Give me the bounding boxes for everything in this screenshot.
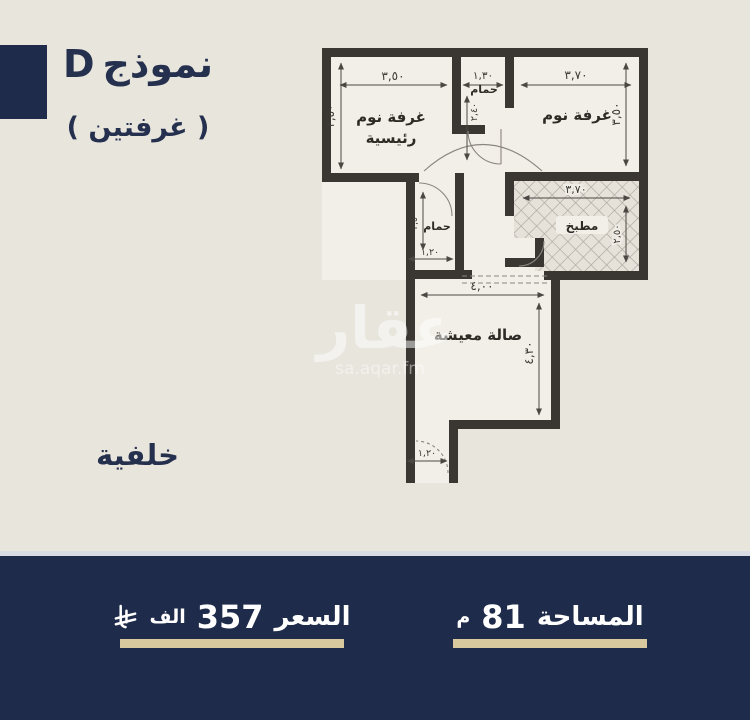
dim-living-width: ٤,٠٠ (470, 279, 493, 293)
dim-master-width: ٣,٥٠ (381, 69, 404, 83)
dim-living-height: ٤,٣٠ (522, 341, 536, 364)
watermark-brand: عقار (314, 294, 454, 362)
watermark-site: sa.aqar.fm (335, 359, 425, 379)
label-kitchen: مطبخ (566, 219, 599, 233)
dim-master-height: ٣,٥٠ (323, 104, 337, 127)
area-value: 81 (481, 598, 526, 636)
dim-bath-mid-height: ٢,٥٠ (410, 212, 420, 229)
dim-bath-top-width: ١,٣٠ (473, 70, 493, 82)
label-master-bedroom-2: رئيسية (366, 129, 417, 147)
price-value: 357 (197, 598, 264, 636)
label-bedroom: غرفة نوم (542, 106, 612, 124)
dim-kitchen-width: ٣,٧٠ (565, 183, 586, 196)
area-row: المساحة 81 م (448, 594, 652, 640)
dim-bath-top-height: ٢,٤٠ (469, 103, 480, 121)
price-row: السعر 357 الف (112, 594, 352, 640)
price-label: السعر (275, 602, 351, 632)
dim-entrance-width: ١,٢٠ (418, 448, 436, 459)
area-label: المساحة (537, 602, 644, 632)
saudi-riyal-icon (113, 603, 138, 632)
label-bathroom-top: حمام (470, 83, 498, 96)
dim-kitchen-height: ٢,٥٠ (612, 224, 623, 243)
area-unit: م (456, 606, 470, 628)
price-unit: الف (149, 606, 185, 628)
listing-flyer: نموذجD ( غرفتين ) خلفية (0, 0, 750, 720)
dim-bedroom-width: ٣,٧٠ (564, 68, 587, 82)
label-bathroom-mid: حمام (423, 220, 451, 233)
price-underline (120, 639, 344, 648)
area-underline (453, 639, 647, 648)
dim-bath-mid-width: ١,٢٠ (421, 247, 439, 258)
label-master-bedroom-1: غرفة نوم (356, 108, 426, 126)
